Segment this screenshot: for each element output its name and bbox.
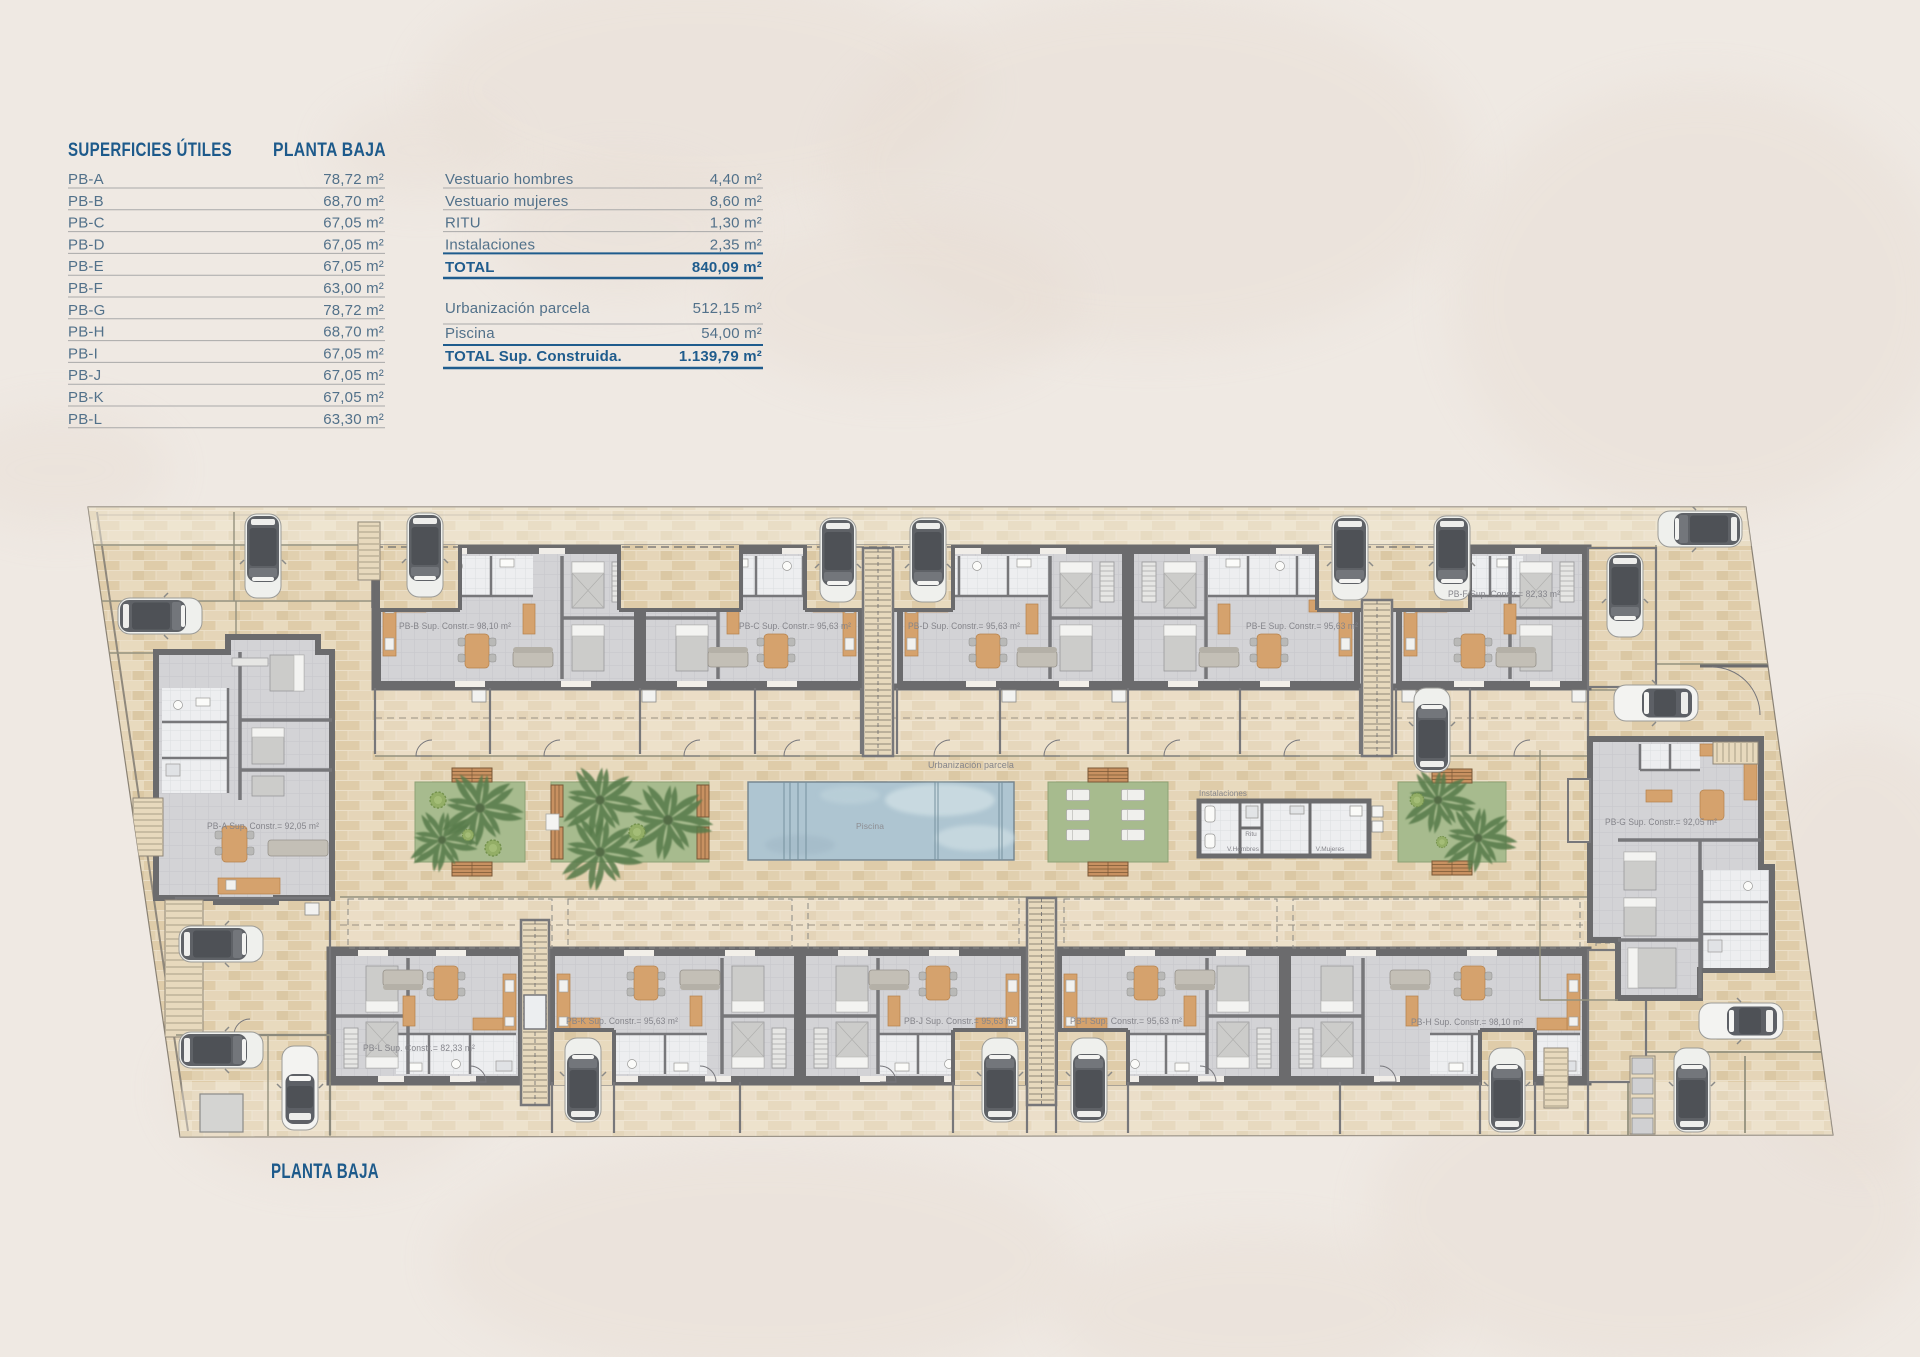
svg-text:PB-I Sup. Constr.= 95,63 m²: PB-I Sup. Constr.= 95,63 m² (1070, 1016, 1182, 1027)
svg-text:V.Hombres: V.Hombres (1227, 846, 1260, 853)
svg-text:78,72 m²: 78,72 m² (323, 171, 384, 188)
svg-text:TOTAL: TOTAL (445, 259, 495, 276)
svg-text:SUPERFICIES ÚTILES: SUPERFICIES ÚTILES (68, 139, 232, 161)
svg-text:PB-H: PB-H (68, 324, 105, 341)
svg-text:63,00 m²: 63,00 m² (323, 280, 384, 297)
svg-text:PB-J: PB-J (68, 367, 101, 384)
svg-text:68,70 m²: 68,70 m² (323, 193, 384, 210)
svg-text:1,30 m²: 1,30 m² (710, 215, 762, 232)
svg-text:TOTAL Sup. Construida.: TOTAL Sup. Construida. (445, 348, 622, 365)
svg-text:67,05 m²: 67,05 m² (323, 236, 384, 253)
svg-text:54,00 m²: 54,00 m² (701, 325, 762, 342)
svg-text:PLANTA BAJA: PLANTA BAJA (273, 140, 386, 161)
svg-text:78,72 m²: 78,72 m² (323, 302, 384, 319)
svg-text:Piscina: Piscina (856, 821, 884, 831)
svg-text:PB-J Sup. Constr.= 95,63 m²: PB-J Sup. Constr.= 95,63 m² (904, 1016, 1016, 1027)
svg-text:63,30 m²: 63,30 m² (323, 411, 384, 428)
svg-text:67,05 m²: 67,05 m² (323, 345, 384, 362)
svg-text:1.139,79 m²: 1.139,79 m² (679, 348, 762, 365)
svg-text:PB-K Sup. Constr.= 95,63 m²: PB-K Sup. Constr.= 95,63 m² (566, 1016, 678, 1027)
svg-text:PB-H Sup. Constr.= 98,10 m²: PB-H Sup. Constr.= 98,10 m² (1411, 1017, 1523, 1028)
svg-text:Vestuario mujeres: Vestuario mujeres (445, 193, 568, 210)
svg-text:PB-B Sup. Constr.= 98,10 m²: PB-B Sup. Constr.= 98,10 m² (399, 621, 511, 632)
svg-text:Vestuario hombres: Vestuario hombres (445, 171, 573, 188)
svg-text:PB-D: PB-D (68, 236, 105, 253)
svg-text:Instalaciones: Instalaciones (1199, 789, 1247, 798)
svg-text:512,15 m²: 512,15 m² (693, 300, 762, 317)
svg-text:Piscina: Piscina (445, 325, 495, 342)
svg-text:PB-G Sup. Constr.= 92,05 m²: PB-G Sup. Constr.= 92,05 m² (1605, 817, 1717, 828)
svg-text:PB-L: PB-L (68, 411, 102, 428)
svg-text:PB-E Sup. Constr.= 95,63 m²: PB-E Sup. Constr.= 95,63 m² (1246, 621, 1358, 632)
svg-text:RITU: RITU (445, 215, 481, 232)
svg-text:67,05 m²: 67,05 m² (323, 389, 384, 406)
svg-text:840,09 m²: 840,09 m² (692, 259, 762, 276)
svg-text:Urbanización parcela: Urbanización parcela (928, 760, 1015, 771)
svg-text:8,60 m²: 8,60 m² (710, 193, 762, 210)
svg-text:PB-C Sup. Constr.= 95,63 m²: PB-C Sup. Constr.= 95,63 m² (739, 621, 851, 632)
svg-text:PB-F Sup. Constr.= 82,33 m²: PB-F Sup. Constr.= 82,33 m² (1448, 589, 1560, 600)
svg-text:68,70 m²: 68,70 m² (323, 324, 384, 341)
svg-text:PB-B: PB-B (68, 193, 104, 210)
svg-text:Ritu: Ritu (1245, 831, 1257, 838)
svg-text:PB-A Sup. Constr.= 92,05 m²: PB-A Sup. Constr.= 92,05 m² (207, 821, 319, 832)
svg-text:2,35 m²: 2,35 m² (710, 236, 762, 253)
svg-text:67,05 m²: 67,05 m² (323, 258, 384, 275)
svg-text:PB-L Sup. Constr.= 82,33 m²: PB-L Sup. Constr.= 82,33 m² (363, 1043, 475, 1054)
svg-text:PB-C: PB-C (68, 215, 105, 232)
svg-text:4,40 m²: 4,40 m² (710, 171, 762, 188)
svg-text:V.Mujeres: V.Mujeres (1316, 846, 1345, 853)
svg-text:Instalaciones: Instalaciones (445, 236, 535, 253)
svg-text:PB-A: PB-A (68, 171, 104, 188)
svg-text:Urbanización parcela: Urbanización parcela (445, 300, 590, 317)
svg-text:PLANTA BAJA: PLANTA BAJA (271, 1160, 379, 1183)
svg-text:PB-G: PB-G (68, 302, 105, 319)
svg-text:PB-I: PB-I (68, 345, 98, 362)
svg-text:PB-F: PB-F (68, 280, 103, 297)
svg-text:67,05 m²: 67,05 m² (323, 215, 384, 232)
svg-text:PB-K: PB-K (68, 389, 104, 406)
svg-text:PB-D Sup. Constr.= 95,63 m²: PB-D Sup. Constr.= 95,63 m² (908, 621, 1020, 632)
svg-text:PB-E: PB-E (68, 258, 104, 275)
svg-text:67,05 m²: 67,05 m² (323, 367, 384, 384)
